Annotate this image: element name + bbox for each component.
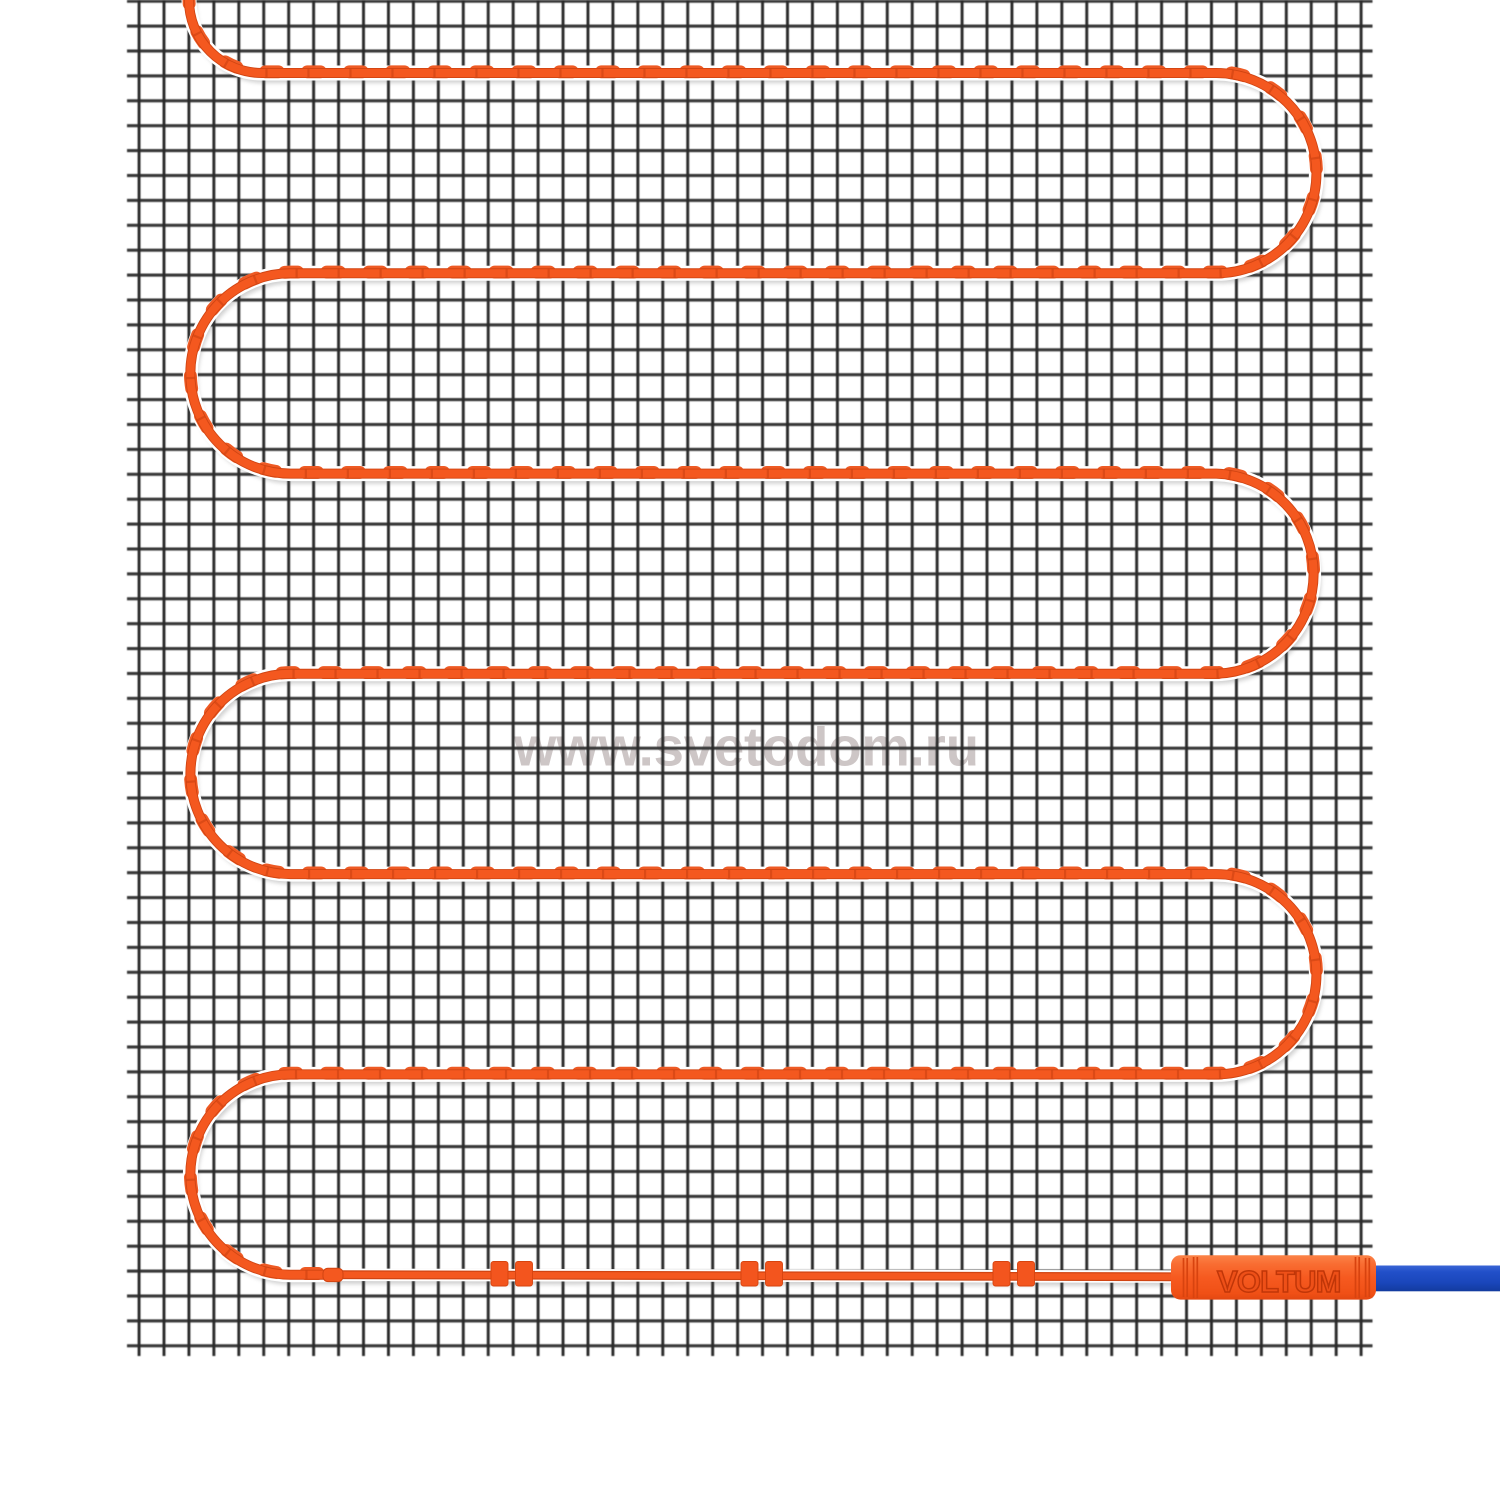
svg-text:VOLTUM: VOLTUM (1217, 1264, 1343, 1299)
